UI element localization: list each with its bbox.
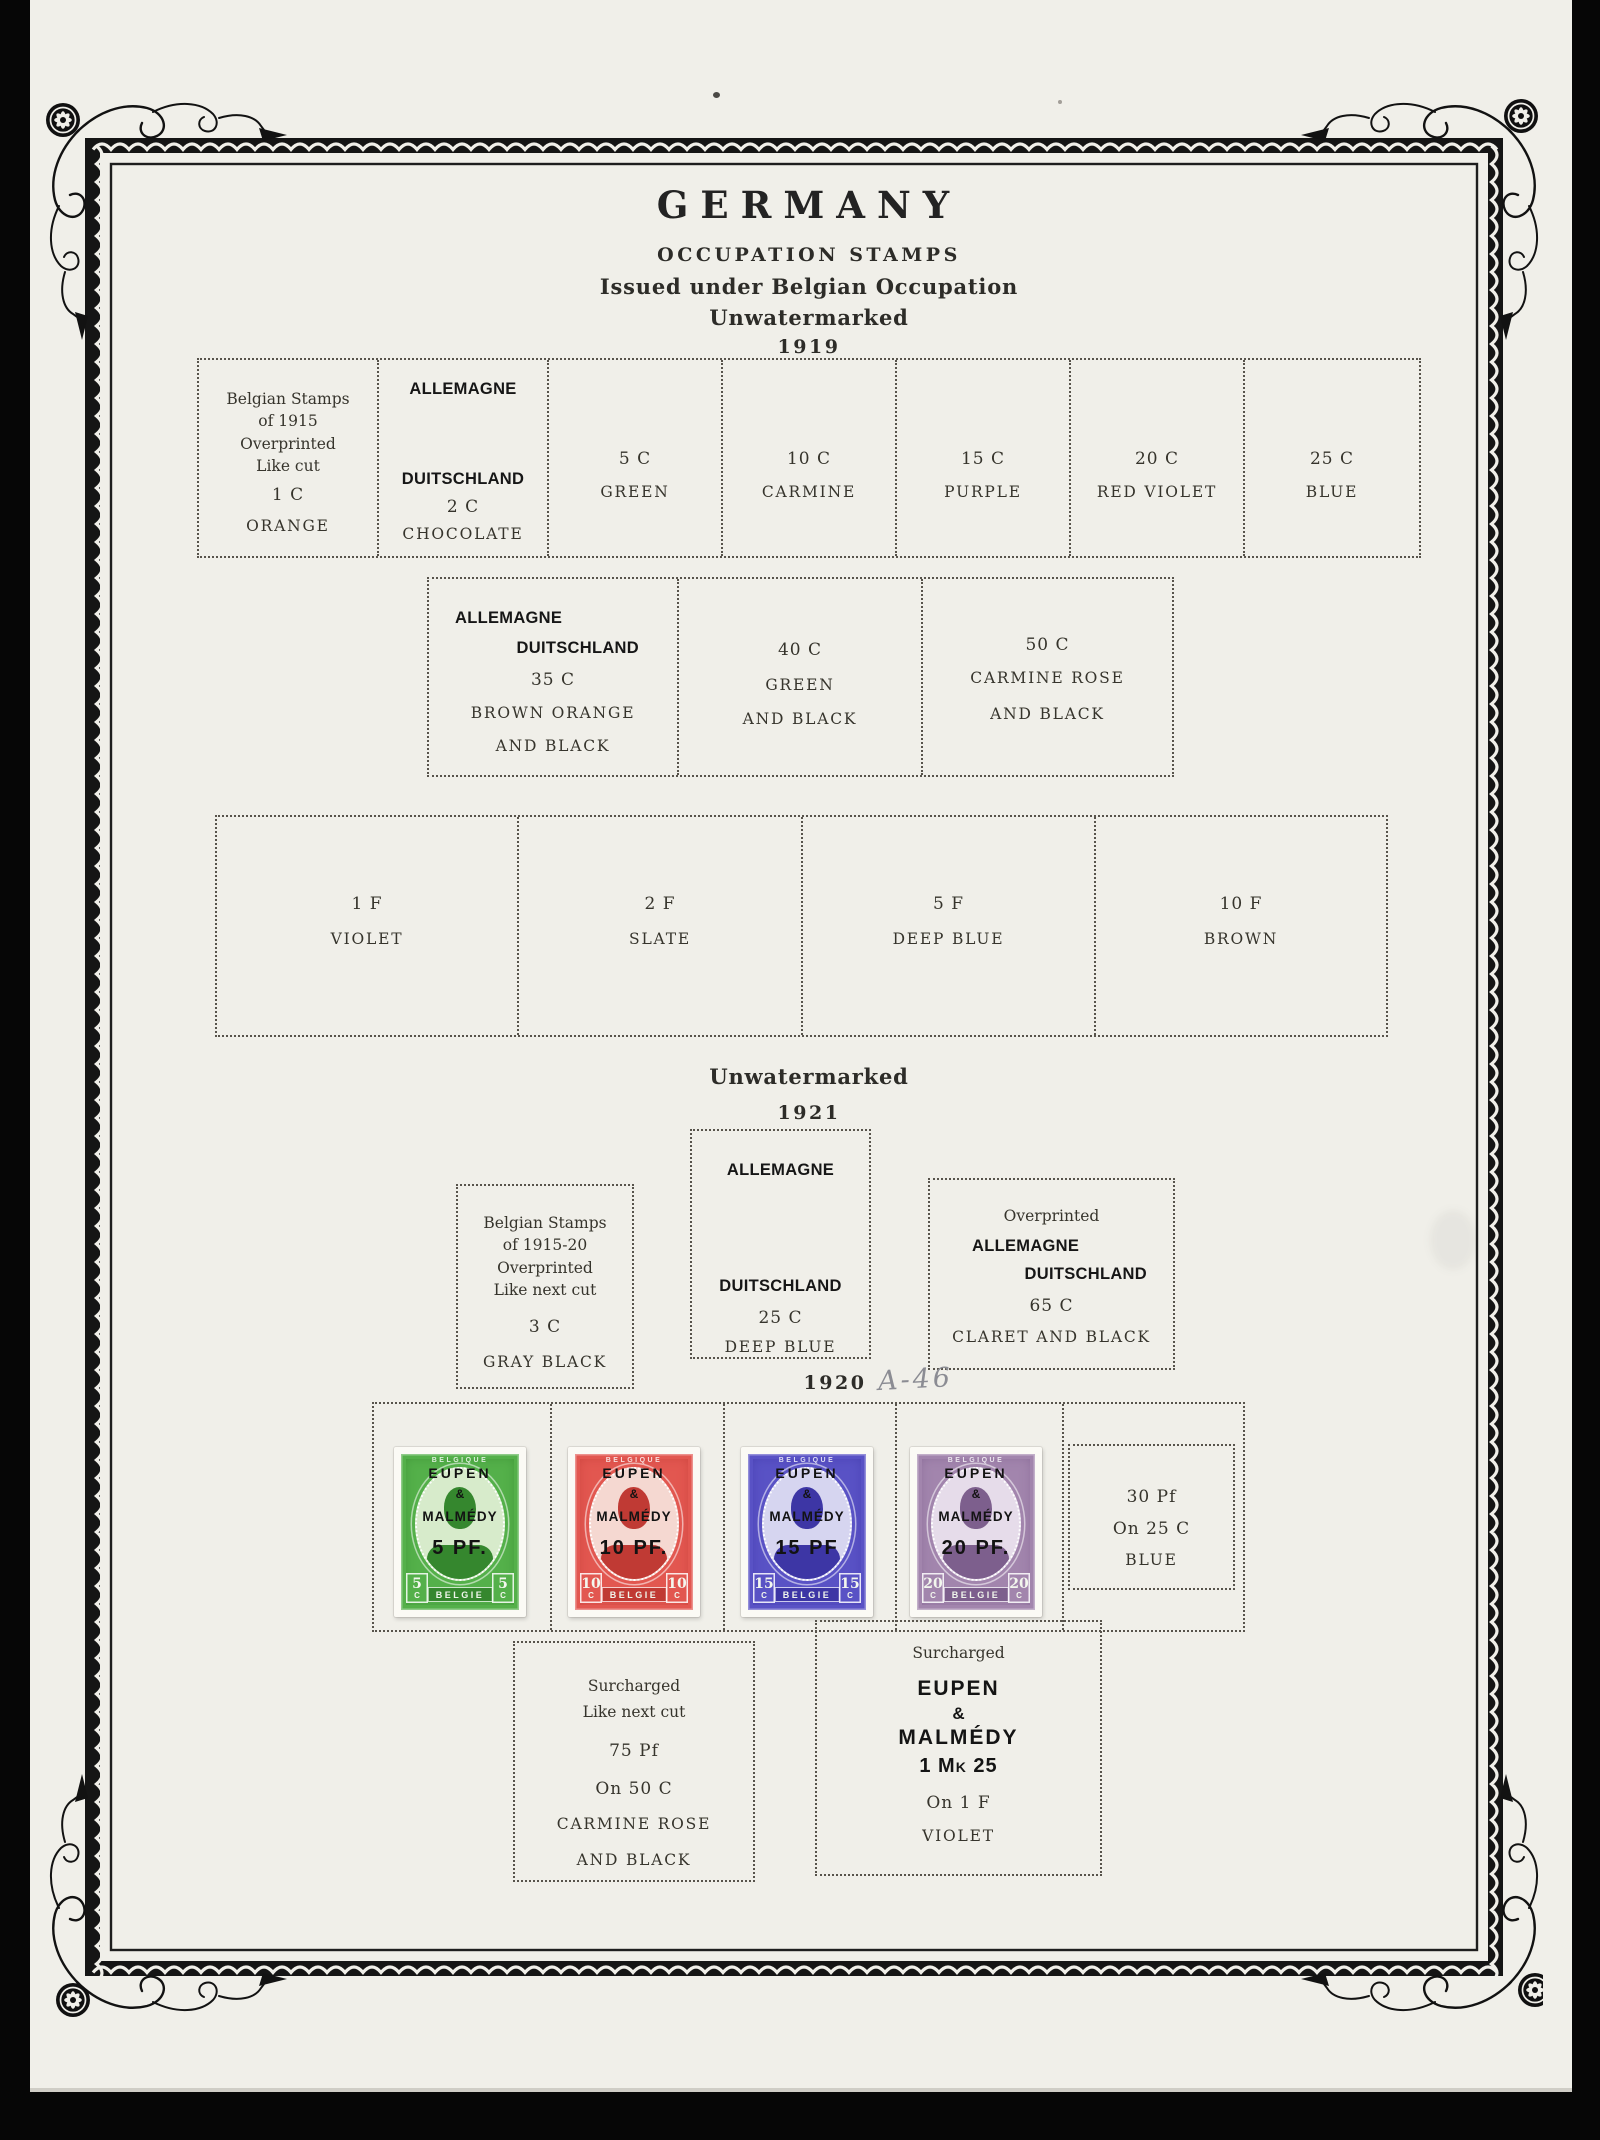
box-color: BROWN (1096, 929, 1386, 951)
box-value: 75 Pf (515, 1740, 753, 1762)
box-color: RED VIOLET (1071, 482, 1243, 504)
stamp-box-2f: 2 F SLATE (517, 817, 801, 1035)
overprint-allemagne: ALLEMAGNE (379, 380, 547, 400)
box-color: CLARET AND BLACK (930, 1327, 1173, 1349)
overprint-surcharge: 10 PF. (575, 1537, 693, 1560)
box-on-value: On 50 C (515, 1778, 753, 1800)
box-note: of 1915 (199, 410, 377, 432)
stamp-box-10f: 10 F BROWN (1094, 817, 1386, 1035)
cell-divider (1062, 1404, 1064, 1630)
box-color: AND BLACK (679, 709, 921, 731)
box-value: 50 C (923, 634, 1172, 656)
box-color: GREEN (549, 482, 721, 504)
box-color: GREEN (679, 675, 921, 697)
box-color: BROWN ORANGE (429, 703, 677, 725)
box-value: 5 C (549, 448, 721, 470)
stamp-box-1f: 1 F VIOLET (217, 817, 517, 1035)
overprint-eupen: EUPEN (575, 1465, 693, 1481)
overprint-surcharge: 5 PF. (401, 1537, 519, 1560)
scan-speck (713, 92, 720, 98)
box-value: 2 F (519, 893, 801, 915)
box-color: AND BLACK (515, 1850, 753, 1872)
box-value: 25 C (692, 1307, 869, 1329)
box-value: 30 Pf (1070, 1486, 1233, 1508)
box-note: Overprinted (458, 1257, 632, 1279)
overprint-malmedy: MALMÉDY (817, 1725, 1100, 1750)
stamp-design: BELGIQUE 15C 15C BELGIE EUPEN & MALMÉDY … (748, 1454, 866, 1610)
box-color: DEEP BLUE (692, 1337, 869, 1359)
stamp-overprint: EUPEN & MALMÉDY 20 PF. (917, 1454, 1035, 1610)
box-value: 20 C (1071, 448, 1243, 470)
stamp-box-1c-orange: Belgian Stamps of 1915 Overprinted Like … (199, 360, 377, 556)
box-value: 40 C (679, 639, 921, 661)
box-color: CARMINE ROSE (515, 1814, 753, 1836)
stamp-box-3c-gray-black: Belgian Stamps of 1915-20 Overprinted Li… (456, 1184, 634, 1389)
stamp-design: BELGIQUE 5C 5C BELGIE EUPEN & MALMÉDY 5 … (401, 1454, 519, 1610)
overprint-ampersand: & (748, 1487, 866, 1501)
cell-divider (895, 1404, 897, 1630)
box-color: CARMINE ROSE (923, 668, 1172, 690)
overprint-eupen: EUPEN (917, 1465, 1035, 1481)
overprint-ampersand: & (401, 1487, 519, 1501)
overprint-ampersand: & (817, 1704, 1100, 1724)
stamp-box-25c-blue: 25 C BLUE (1243, 360, 1419, 556)
scan-speck (1058, 100, 1062, 104)
stamp-box-20c-red-violet: 20 C RED VIOLET (1069, 360, 1243, 556)
stamp-5pf-green: BELGIQUE 5C 5C BELGIE EUPEN & MALMÉDY 5 … (394, 1447, 526, 1617)
overprint-allemagne: ALLEMAGNE (692, 1161, 869, 1181)
box-color: AND BLACK (429, 736, 677, 758)
issued-line: Issued under Belgian Occupation (46, 274, 1572, 299)
stamp-design: BELGIQUE 10C 10C BELGIE EUPEN & MALMÉDY … (575, 1454, 693, 1610)
box-note: Belgian Stamps (458, 1212, 632, 1234)
stamp-box-25c-deep-blue: ALLEMAGNE DUITSCHLAND 25 C DEEP BLUE (690, 1129, 871, 1359)
scan-smudge (1430, 1210, 1476, 1270)
stamp-box-2c-chocolate: ALLEMAGNE DUITSCHLAND 2 C CHOCOLATE (377, 360, 547, 556)
overprint-ampersand: & (575, 1487, 693, 1501)
stamp-overprint: EUPEN & MALMÉDY 5 PF. (401, 1454, 519, 1610)
overprint-eupen: EUPEN (817, 1676, 1100, 1701)
box-value: 35 C (429, 669, 677, 691)
cell-divider (723, 1404, 725, 1630)
box-note: Like cut (199, 455, 377, 477)
stamp-15pf-blue: BELGIQUE 15C 15C BELGIE EUPEN & MALMÉDY … (741, 1447, 873, 1617)
stamp-box-30pf-on-25c: 30 Pf On 25 C BLUE (1068, 1444, 1235, 1590)
page-title: GERMANY (46, 183, 1572, 227)
stamp-overprint: EUPEN & MALMÉDY 10 PF. (575, 1454, 693, 1610)
overprint-eupen: EUPEN (401, 1465, 519, 1481)
box-note: of 1915-20 (458, 1234, 632, 1256)
box-color: GRAY BLACK (458, 1352, 632, 1374)
box-value: 1 F (217, 893, 517, 915)
box-on-value: On 25 C (1070, 1518, 1233, 1540)
stamp-20pf-lilac: BELGIQUE 20C 20C BELGIE EUPEN & MALMÉDY … (910, 1447, 1042, 1617)
overprint-malmedy: MALMÉDY (575, 1509, 693, 1524)
box-color: VIOLET (217, 929, 517, 951)
box-color: AND BLACK (923, 704, 1172, 726)
overprint-eupen: EUPEN (748, 1465, 866, 1481)
row-franc-values: 1 F VIOLET 2 F SLATE 5 F DEEP BLUE 10 F … (215, 815, 1388, 1037)
stamp-box-5f: 5 F DEEP BLUE (801, 817, 1094, 1035)
box-color: DEEP BLUE (803, 929, 1094, 951)
scanned-album-page: GERMANY OCCUPATION STAMPS Issued under B… (0, 0, 1600, 2140)
year-1921: 1921 (46, 1102, 1572, 1124)
box-note: Surcharged (817, 1642, 1100, 1664)
box-value: 10 C (723, 448, 895, 470)
stamp-box-75pf-surcharge: Surcharged Like next cut 75 Pf On 50 C C… (513, 1641, 755, 1882)
row-1919-small-values: Belgian Stamps of 1915 Overprinted Like … (197, 358, 1421, 558)
box-value: 10 F (1096, 893, 1386, 915)
box-color: VIOLET (817, 1826, 1100, 1848)
stamp-design: BELGIQUE 20C 20C BELGIE EUPEN & MALMÉDY … (917, 1454, 1035, 1610)
box-value: 25 C (1245, 448, 1419, 470)
page-subtitle: OCCUPATION STAMPS (46, 244, 1572, 266)
box-value: 3 C (458, 1316, 632, 1338)
overprint-allemagne: ALLEMAGNE (930, 1237, 1173, 1257)
overprint-surcharge: 20 PF. (917, 1537, 1035, 1560)
box-color: BLUE (1070, 1550, 1233, 1572)
box-value: 15 C (897, 448, 1069, 470)
stamp-box-40c: 40 C GREEN AND BLACK (677, 579, 921, 775)
cell-divider (550, 1404, 552, 1630)
overprint-duitschland: DUITSCHLAND (930, 1265, 1173, 1285)
stamp-box-10c-carmine: 10 C CARMINE (721, 360, 895, 556)
box-color: SLATE (519, 929, 801, 951)
box-note: Belgian Stamps (199, 388, 377, 410)
album-page: GERMANY OCCUPATION STAMPS Issued under B… (30, 0, 1572, 2088)
box-color: BLUE (1245, 482, 1419, 504)
stamp-box-35c: ALLEMAGNE DUITSCHLAND 35 C BROWN ORANGE … (429, 579, 677, 775)
overprint-malmedy: MALMÉDY (917, 1509, 1035, 1524)
box-value: 5 F (803, 893, 1094, 915)
box-color: PURPLE (897, 482, 1069, 504)
box-color: CHOCOLATE (379, 524, 547, 546)
box-note: Like next cut (515, 1701, 753, 1723)
stamp-box-65c-claret: Overprinted ALLEMAGNE DUITSCHLAND 65 C C… (928, 1178, 1175, 1370)
stamp-box-1mk25-surcharge: Surcharged EUPEN & MALMÉDY 1 Mk 25 On 1 … (815, 1620, 1102, 1876)
box-color: ORANGE (199, 516, 377, 538)
stamp-10pf-red: BELGIQUE 10C 10C BELGIE EUPEN & MALMÉDY … (568, 1447, 700, 1617)
box-on-value: On 1 F (817, 1792, 1100, 1814)
overprint-malmedy: MALMÉDY (401, 1509, 519, 1524)
box-note: Surcharged (515, 1675, 753, 1697)
overprint-ampersand: & (917, 1487, 1035, 1501)
box-color: CARMINE (723, 482, 895, 504)
overprint-surcharge: 15 PF (748, 1537, 866, 1560)
overprint-duitschland: DUITSCHLAND (692, 1277, 869, 1297)
box-note: Overprinted (199, 433, 377, 455)
box-note: Like next cut (458, 1279, 632, 1301)
box-value: 65 C (930, 1295, 1173, 1317)
box-value: 2 C (379, 496, 547, 518)
watermark-line-1921: Unwatermarked (46, 1064, 1572, 1089)
row-1919-bicolor-values: ALLEMAGNE DUITSCHLAND 35 C BROWN ORANGE … (427, 577, 1174, 777)
overprint-allemagne: ALLEMAGNE (429, 609, 677, 629)
overprint-malmedy: MALMÉDY (748, 1509, 866, 1524)
handwritten-catalog-note: A-46 (877, 1362, 954, 1397)
stamp-box-15c-purple: 15 C PURPLE (895, 360, 1069, 556)
stamp-overprint: EUPEN & MALMÉDY 15 PF (748, 1454, 866, 1610)
overprint-surcharge: 1 Mk 25 (817, 1754, 1100, 1778)
stamp-box-50c: 50 C CARMINE ROSE AND BLACK (921, 579, 1172, 775)
box-value: 1 C (199, 484, 377, 506)
overprint-duitschland: DUITSCHLAND (379, 470, 547, 490)
year-1919: 1919 (46, 336, 1572, 358)
watermark-line-1919: Unwatermarked (46, 305, 1572, 330)
box-note: Overprinted (930, 1205, 1173, 1227)
stamp-box-5c-green: 5 C GREEN (547, 360, 721, 556)
overprint-duitschland: DUITSCHLAND (429, 639, 677, 659)
